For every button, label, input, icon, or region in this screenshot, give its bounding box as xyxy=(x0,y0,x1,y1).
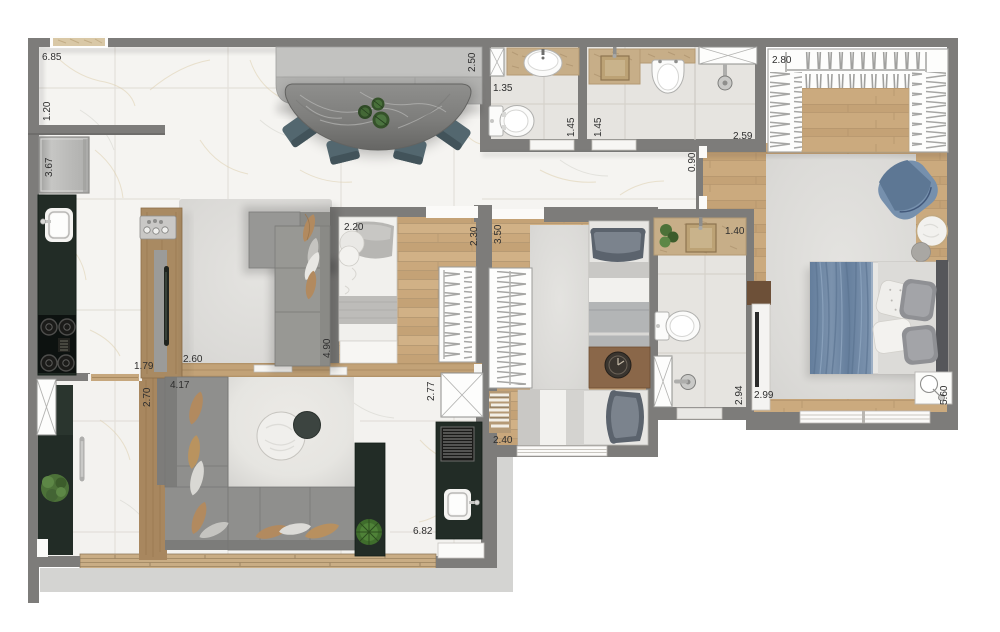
svg-text:1.45: 1.45 xyxy=(593,117,604,137)
svg-text:2.99: 2.99 xyxy=(754,390,774,401)
svg-text:2.60: 2.60 xyxy=(183,354,203,365)
svg-text:1.40: 1.40 xyxy=(725,226,745,237)
svg-text:2.30: 2.30 xyxy=(469,226,480,246)
svg-text:5.60: 5.60 xyxy=(939,385,950,405)
svg-text:2.94: 2.94 xyxy=(734,385,745,405)
svg-text:4.17: 4.17 xyxy=(170,380,190,391)
svg-text:2.40: 2.40 xyxy=(493,435,513,446)
svg-text:2.20: 2.20 xyxy=(344,222,364,233)
svg-text:3.67: 3.67 xyxy=(44,157,55,177)
svg-text:6.82: 6.82 xyxy=(413,526,433,537)
svg-text:1.20: 1.20 xyxy=(42,101,53,121)
svg-text:2.50: 2.50 xyxy=(467,52,478,72)
svg-text:1.79: 1.79 xyxy=(134,361,154,372)
svg-text:2.70: 2.70 xyxy=(142,387,153,407)
svg-text:4.90: 4.90 xyxy=(322,338,333,358)
svg-text:1.45: 1.45 xyxy=(566,117,577,137)
svg-text:1.35: 1.35 xyxy=(493,83,513,94)
svg-text:2.59: 2.59 xyxy=(733,131,753,142)
svg-text:6.85: 6.85 xyxy=(42,52,62,63)
svg-text:2.80: 2.80 xyxy=(772,55,792,66)
svg-text:3.50: 3.50 xyxy=(493,224,504,244)
svg-text:0.90: 0.90 xyxy=(687,152,698,172)
svg-text:2.77: 2.77 xyxy=(426,381,437,401)
